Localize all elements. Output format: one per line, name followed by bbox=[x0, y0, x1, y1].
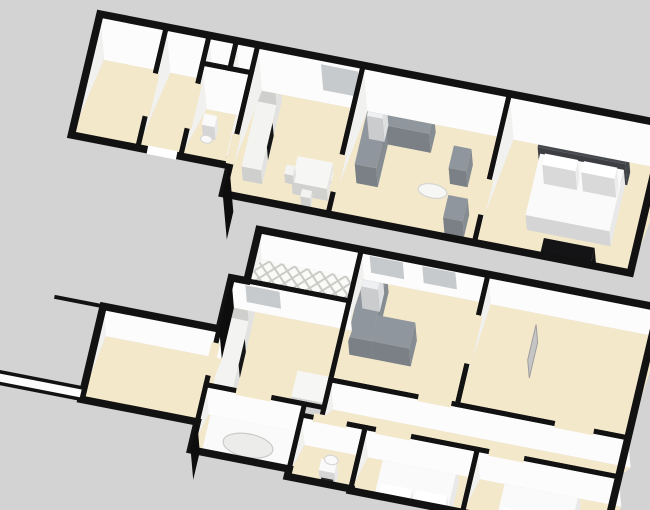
door-opening bbox=[147, 150, 176, 156]
floorplan-3d-canvas[interactable] bbox=[0, 0, 650, 510]
armchair bbox=[443, 195, 469, 237]
floorplan-3d-view[interactable] bbox=[0, 0, 650, 510]
